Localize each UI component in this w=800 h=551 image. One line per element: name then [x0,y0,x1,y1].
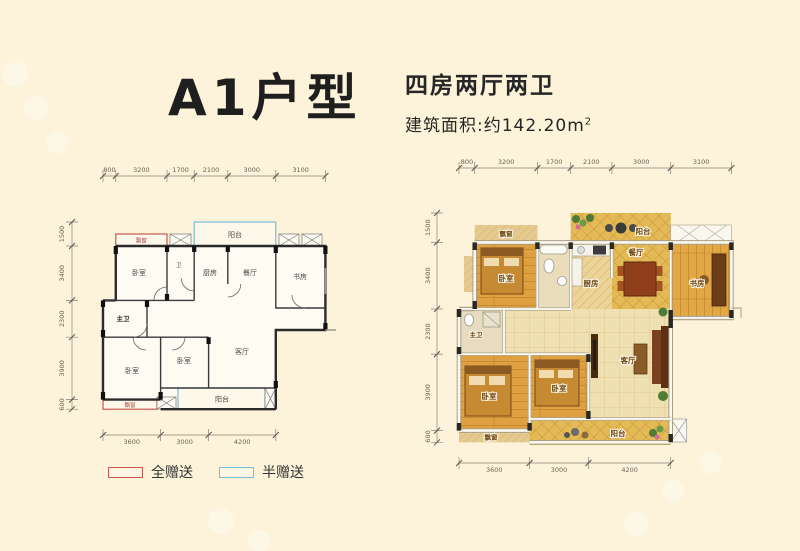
room-label-balcony: 阳台 [215,395,229,404]
dim-label: 4200 [234,438,251,446]
dim-label: 3400 [425,267,432,284]
legend-half-gift-label: 半赠送 [262,462,304,482]
legend: 全赠送 半赠送 [108,462,304,482]
dim-label: 3000 [244,166,261,174]
room-label-balcony: 阳台 [636,226,651,236]
legend-full-gift-swatch [108,467,143,478]
room-label-bedroom: 卧室 [125,366,139,375]
unit-spec: 四房两厅两卫 建筑面积:约142.20m2 [405,66,592,136]
left-floorplan-schematic: 800 3200 1700 2100 3000 3100 1500 3400 2… [50,148,362,460]
dim-label: 600 [58,398,66,410]
room-count-label: 四房两厅两卫 [405,66,592,100]
dim-label: 3900 [425,384,432,401]
dim-label: 800 [461,158,473,166]
room-label-kitchen: 厨房 [584,278,599,288]
room-label-bay-window: 飘窗 [500,229,514,238]
dim-label: 2100 [203,166,220,174]
room-label-master-bath: 主卫 [117,314,131,323]
dining-table-set [618,262,663,296]
right-plan-side-dimensions [431,210,443,445]
dim-label: 3000 [551,466,568,474]
dim-label: 3200 [498,158,515,166]
room-label-bay-window: 飘窗 [485,433,499,442]
room-label-balcony: 阳台 [611,428,626,438]
dim-label: 1500 [58,226,66,243]
room-label-living: 客厅 [235,347,249,356]
page-title: A1户型 [168,58,362,130]
room-label-bay-window: 飘窗 [136,237,148,245]
bedroom1-bed [481,248,523,294]
room-label-master-bath: 主卫 [470,330,484,339]
bedroom3-bed [535,360,579,406]
dim-label: 3400 [58,265,66,282]
bedroom2-bed [465,366,511,416]
dim-label: 3000 [633,158,650,166]
side-ledge-and-window [325,268,336,330]
floorplan-page: A1户型 四房两厅两卫 建筑面积:约142.20m2 800 3200 1700… [0,0,800,551]
dim-label: 4200 [621,466,638,474]
room-label-study: 书房 [293,272,307,281]
room-label-bedroom: 卧室 [177,356,191,365]
room-label-living: 客厅 [620,355,636,365]
watermark-circle [624,512,648,536]
watermark-circle [2,60,28,86]
dim-label: 2100 [583,158,600,166]
room-label-balcony: 阳台 [228,230,242,239]
dim-label: 3000 [176,438,193,446]
watermark-circle [24,96,48,120]
legend-half-gift-swatch [219,467,254,478]
dim-label: 600 [425,430,432,442]
dim-label: 1500 [425,219,432,236]
room-label-bath: 卫 [176,262,182,269]
dim-label: 2300 [425,323,432,340]
room-label-study: 书房 [690,278,705,288]
area-superscript: 2 [585,116,592,127]
room-label-dining: 餐厅 [628,247,644,257]
room-label-bay-window: 飘窗 [124,401,136,409]
watermark-circle [208,508,234,534]
dim-label: 3100 [693,158,710,166]
window-strip [671,225,732,242]
dim-label: 3600 [124,438,141,446]
dim-label: 3200 [133,166,150,174]
watermark-circle [248,530,270,551]
area-label: 建筑面积:约142.20m2 [405,111,592,136]
room-label-kitchen: 厨房 [203,268,217,277]
dim-label: 2300 [58,311,66,328]
dim-label: 1700 [172,166,189,174]
dim-label: 3900 [58,360,66,377]
left-plan-side-dimensions [66,219,78,412]
area-text: 建筑面积:约142.20m [405,116,585,136]
legend-full-gift-label: 全赠送 [151,462,193,482]
dim-label: 1700 [546,158,563,166]
dim-label: 3600 [486,466,503,474]
dim-label: 800 [103,166,115,174]
room-label-dining: 餐厅 [243,268,257,277]
right-floorplan-rendered: 800 3200 1700 2100 3000 3100 1500 3400 2… [425,138,765,488]
room-label-bedroom: 卧室 [499,273,514,283]
dim-label: 3100 [292,166,309,174]
room-label-bedroom: 卧室 [482,391,497,401]
room-label-bedroom: 卧室 [132,268,146,277]
room-label-bedroom: 卧室 [552,383,567,393]
